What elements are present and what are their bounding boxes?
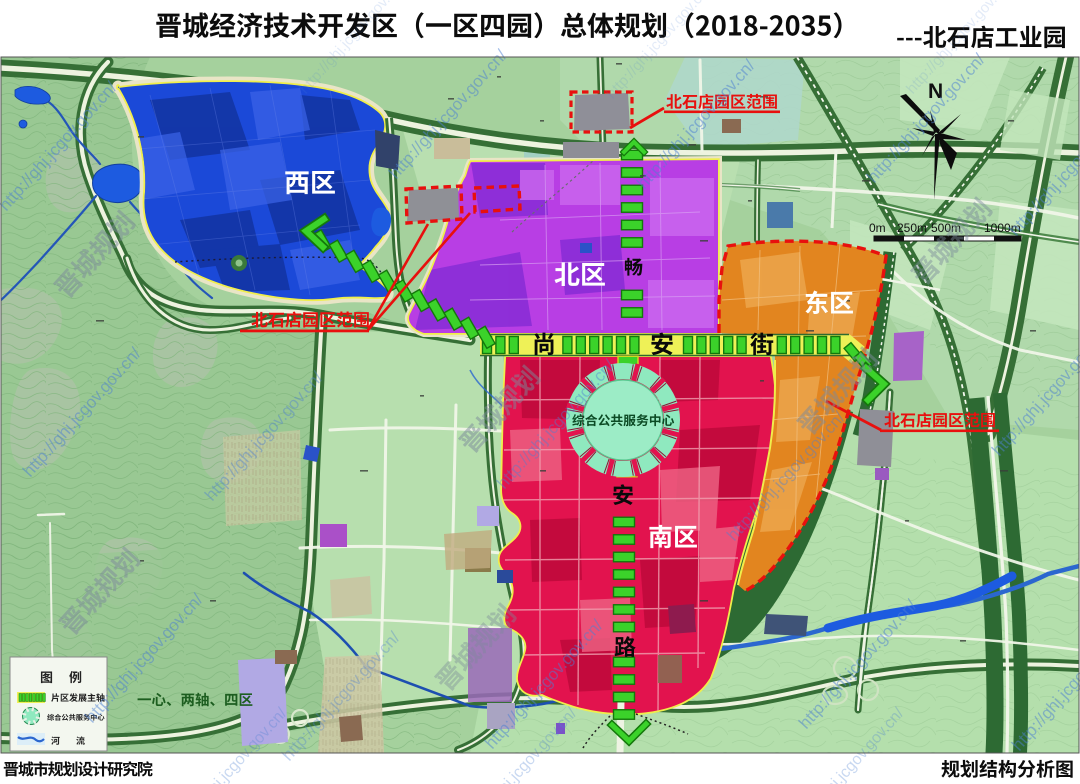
svg-text:0m: 0m xyxy=(869,221,886,235)
svg-text:250m: 250m xyxy=(897,221,927,235)
